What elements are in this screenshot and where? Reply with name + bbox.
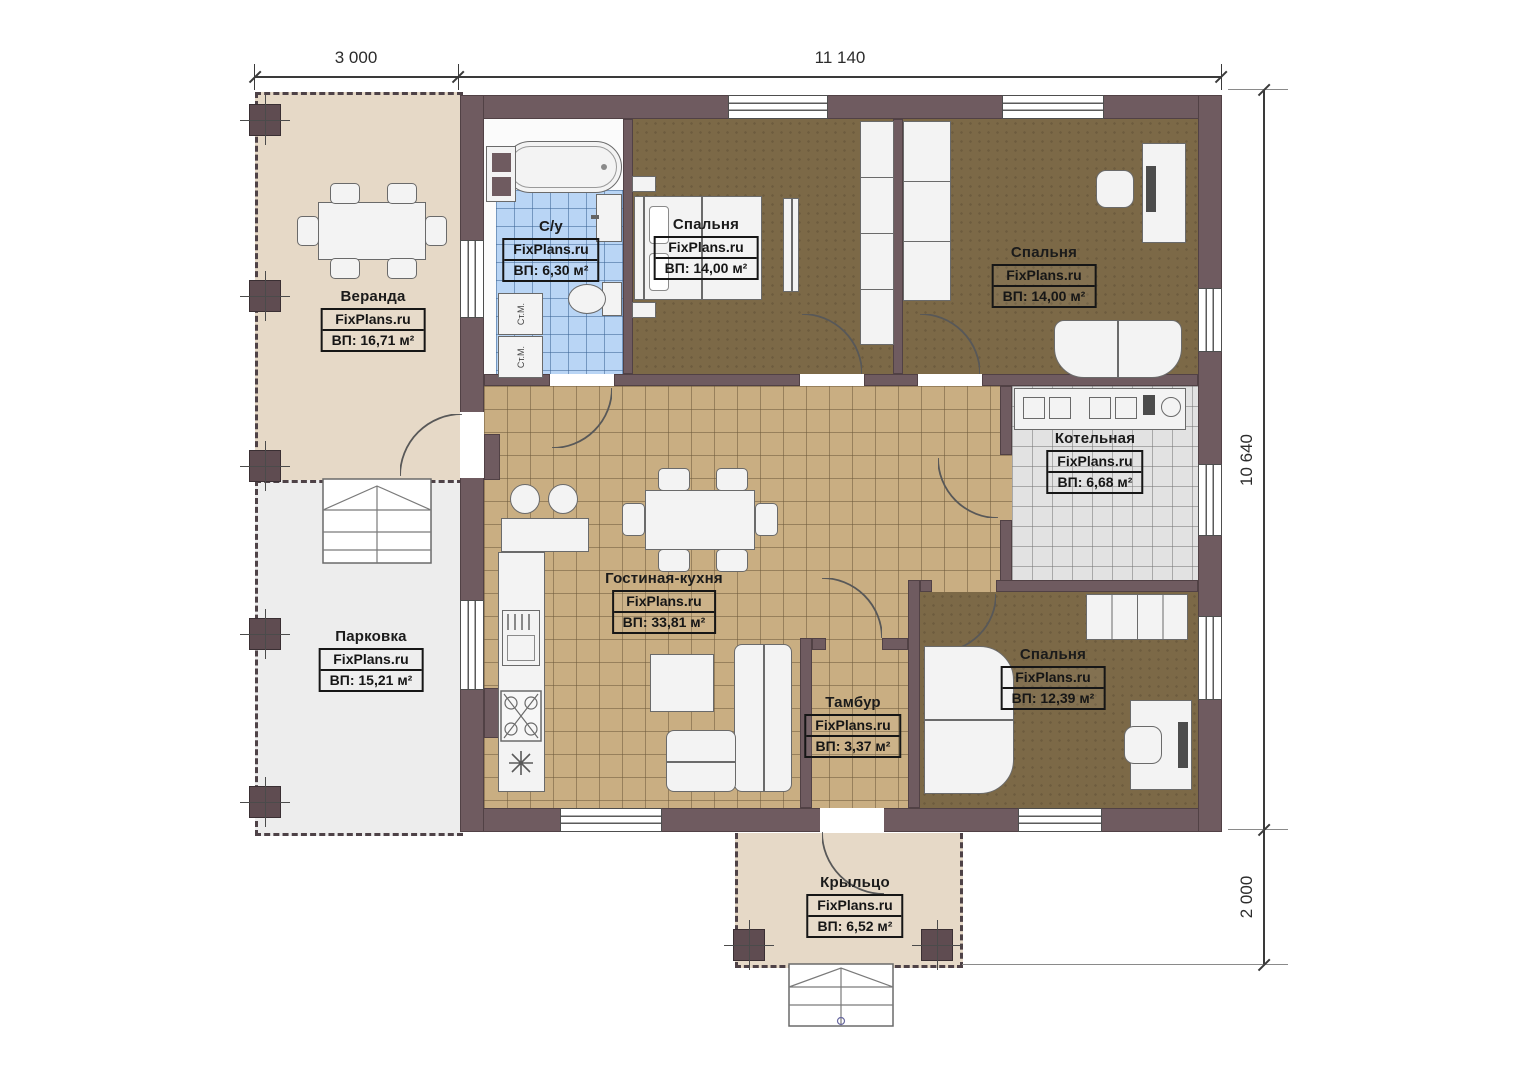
wall-tambour-top [882,638,908,650]
desk-chair [1096,170,1134,208]
chair [330,258,360,279]
door-arc [400,414,462,476]
washing-machine: Ст.М. [498,336,543,378]
room-name: Котельная [1046,430,1143,447]
pillar [249,280,281,312]
door-arc [552,388,612,448]
sofa [1054,320,1182,378]
chair [658,549,690,572]
watermark: FixPlans.ru [994,266,1095,285]
room-label-porch: Крыльцо FixPlans.ru ВП: 6,52 м² [806,874,903,938]
veranda-table [318,202,426,260]
outer-wall-top [460,95,1222,119]
stove [500,690,542,742]
room-area: ВП: 14,00 м² [994,285,1095,306]
window [460,240,484,318]
wall-h2 [996,580,1198,592]
bar-stool [548,484,578,514]
window [1198,288,1222,352]
watermark: FixPlans.ru [504,240,597,259]
chair [330,183,360,204]
wall-bedroom1-bedroom2 [893,119,903,374]
door-opening-veranda [460,412,484,478]
dimension-line-top [255,76,1222,78]
room-area: ВП: 15,21 м² [321,669,422,690]
bathtub [504,141,622,193]
room-name: Спальня [1001,646,1106,663]
watermark: FixPlans.ru [323,310,424,329]
room-label-bedroom-2: Спальня FixPlans.ru ВП: 14,00 м² [992,244,1097,308]
wall-bath-bedroom1 [623,119,633,374]
chair [716,549,748,572]
room-name: Веранда [321,288,426,305]
door-arc [938,594,996,652]
nightstand [632,176,656,192]
pillar [249,450,281,482]
room-label-bathroom: С/у FixPlans.ru ВП: 6,30 м² [502,218,599,282]
window [1002,95,1104,119]
room-area: ВП: 12,39 м² [1003,687,1104,708]
window [1198,464,1222,536]
dimension-label: 10 640 [1237,434,1257,486]
dining-table [645,490,755,550]
chair [387,183,417,204]
pillar [733,929,765,961]
chair [716,468,748,491]
chair [387,258,417,279]
bar-stool [510,484,540,514]
chair [622,503,645,536]
chair [658,468,690,491]
room-name: Тамбур [804,694,901,711]
pillar [921,929,953,961]
dimension-label: 2 000 [1237,876,1257,919]
dimension-line-right [1263,90,1265,965]
watermark: FixPlans.ru [806,716,899,735]
washer-label: Ст.М. [516,303,526,325]
kitchen-bar [501,518,589,552]
window [1018,808,1102,832]
room-label-boiler: Котельная FixPlans.ru ВП: 6,68 м² [1046,430,1143,494]
wall-bedroom3-left [908,580,920,808]
room-label-veranda: Веранда FixPlans.ru ВП: 16,71 м² [321,288,426,352]
stairs-icon [322,478,432,564]
pillar [249,618,281,650]
door-arc [938,458,998,518]
computer-monitor [1146,166,1156,212]
wardrobe [860,121,894,345]
room-name: С/у [502,218,599,235]
dimension-label: 11 140 [815,48,866,68]
room-area: ВП: 33,81 м² [614,611,715,632]
room-name: Спальня [654,216,759,233]
sink-icon [506,748,536,778]
computer-monitor [1178,722,1188,768]
room-area: ВП: 16,71 м² [323,329,424,350]
dimension-extension [1228,89,1288,90]
watermark: FixPlans.ru [1003,668,1104,687]
room-name: Спальня [992,244,1097,261]
washer-label: Ст.М. [516,346,526,368]
room-area: ВП: 6,68 м² [1048,471,1141,492]
dimension-extension [962,964,1288,965]
corner-sofa [666,730,736,792]
window [1198,616,1222,700]
nightstand [632,302,656,318]
room-label-bedroom-3: Спальня FixPlans.ru ВП: 12,39 м² [1001,646,1106,710]
room-area: ВП: 14,00 м² [656,257,757,278]
room-area: ВП: 6,52 м² [808,915,901,936]
door-arc [822,578,882,638]
wall-pier [484,434,500,480]
room-name: Крыльцо [806,874,903,891]
stairs-icon [788,963,894,1027]
pillar [249,104,281,136]
chair [425,216,447,246]
window [460,600,484,690]
watermark: FixPlans.ru [614,592,715,611]
dimension-label: 3 000 [335,48,378,68]
watermark: FixPlans.ru [808,896,901,915]
fridge [502,610,540,666]
wall-tambour-top [812,638,826,650]
boiler-counter [1014,388,1186,430]
chair [297,216,319,246]
door-opening-entrance [820,808,884,832]
room-name: Парковка [319,628,424,645]
washing-machine: Ст.М. [498,293,543,335]
watermark: FixPlans.ru [1048,452,1141,471]
room-label-tambour: Тамбур FixPlans.ru ВП: 3,37 м² [804,694,901,758]
window [728,95,828,119]
wall-h1 [614,374,800,386]
chair [755,503,778,536]
bath-cabinet [486,146,516,202]
wall-h1 [864,374,918,386]
dimension-extension [1228,829,1288,830]
shower-door [596,194,622,242]
window [560,808,662,832]
wardrobe [903,121,951,301]
wall-h2 [920,580,932,592]
coffee-table [650,654,714,712]
watermark: FixPlans.ru [321,650,422,669]
room-label-parking: Парковка FixPlans.ru ВП: 15,21 м² [319,628,424,692]
room-label-bedroom-1: Спальня FixPlans.ru ВП: 14,00 м² [654,216,759,280]
desk-chair [1124,726,1162,764]
room-area: ВП: 3,37 м² [806,735,899,756]
watermark: FixPlans.ru [656,238,757,257]
wardrobe [1086,594,1188,640]
floor-plan: Ст.М. Ст.М. [0,0,1528,1080]
wall-boiler-left [1000,386,1012,455]
door-arc [920,314,980,374]
room-name: Гостиная-кухня [605,570,723,587]
toilet-bowl [568,284,606,314]
door-arc [802,314,862,374]
pillar [249,786,281,818]
corner-sofa [734,644,792,792]
dresser [783,198,799,292]
room-area: ВП: 6,30 м² [504,259,597,280]
room-label-living-kitchen: Гостиная-кухня FixPlans.ru ВП: 33,81 м² [605,570,723,634]
